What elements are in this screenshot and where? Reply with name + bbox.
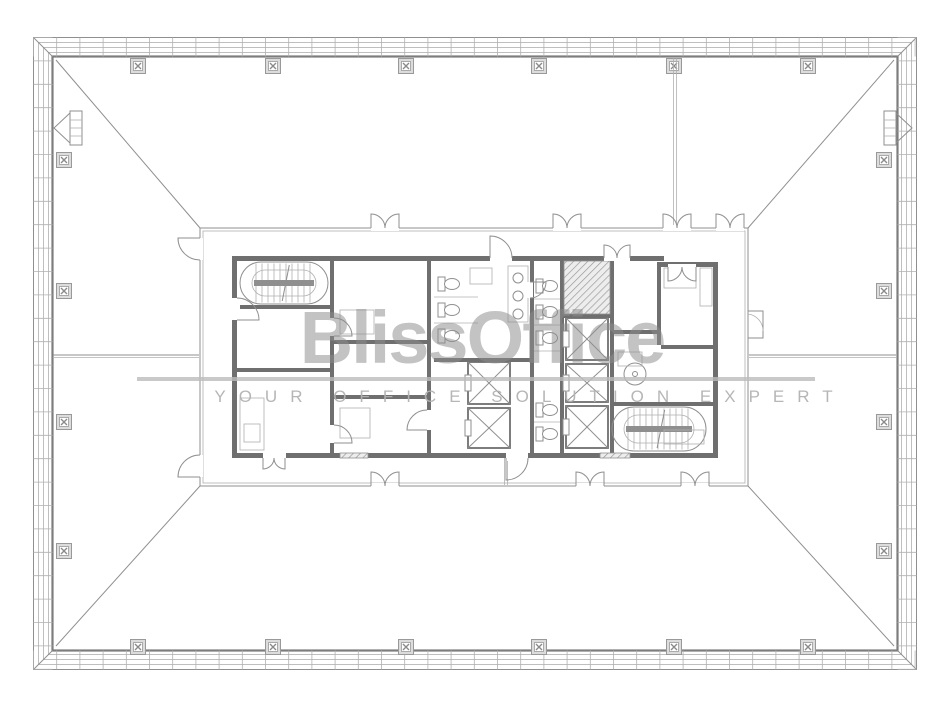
column-icon [801,59,816,74]
column-icon [532,59,547,74]
floor-plan-page: BlissOffice YOUR OFFICE SOLUTION EXPERT [0,0,952,713]
toilet-icon [536,279,558,293]
column-icon [399,640,414,655]
column-icon [667,59,682,74]
column-icon [667,640,682,655]
toilet-icon [438,277,460,291]
watermark-brand-text: BlissOffice [300,296,665,379]
sink-icon [513,273,523,283]
wall-vent-detail-left [54,111,82,145]
column-icon [131,640,146,655]
column-icon [877,415,892,430]
column-icon [877,153,892,168]
column-icon [801,640,816,655]
column-icon [266,640,281,655]
column-icon [877,284,892,299]
toilet-icon [536,427,558,441]
column-icon [399,59,414,74]
column-icon [266,59,281,74]
column-icon [131,59,146,74]
elevator-icon [465,408,510,448]
watermark-tagline-text: YOUR OFFICE SOLUTION EXPERT [214,387,845,406]
column-icon [57,153,72,168]
watermark: BlissOffice YOUR OFFICE SOLUTION EXPERT [137,296,846,406]
column-icon [57,284,72,299]
elevator-icon [563,406,608,448]
column-icon [57,544,72,559]
column-icon [57,415,72,430]
column-icon [877,544,892,559]
hatched-wall-segment [340,453,368,458]
column-icon [532,640,547,655]
floor-plan-drawing: BlissOffice YOUR OFFICE SOLUTION EXPERT [0,0,952,713]
hatched-wall-segment [600,453,630,458]
